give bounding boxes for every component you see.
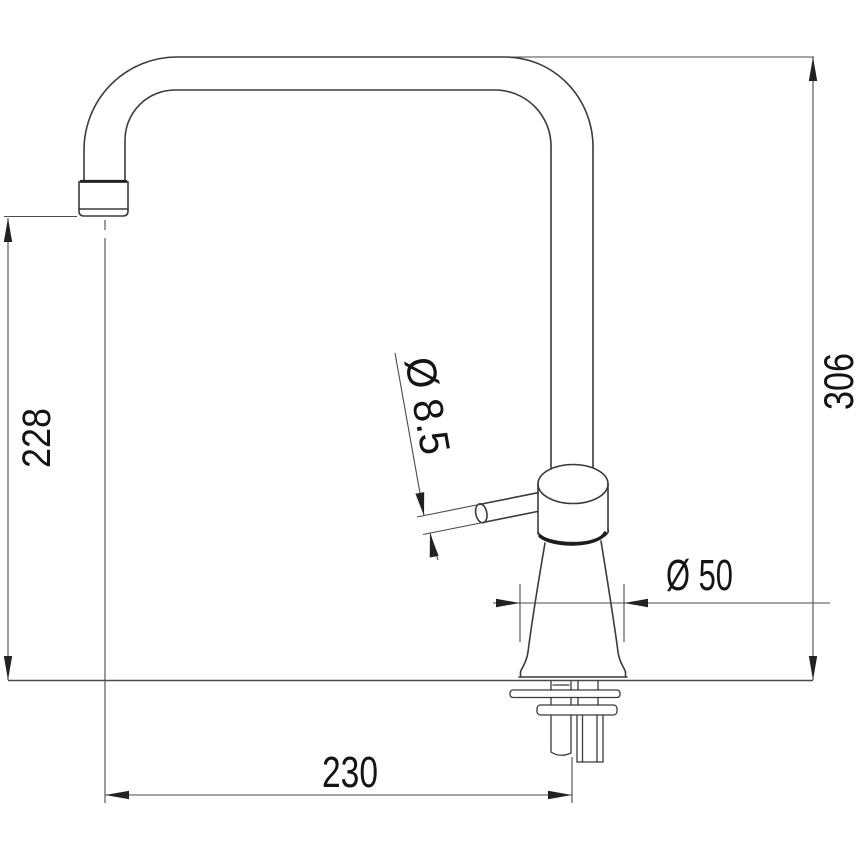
mounting-nut-plate [537, 705, 617, 715]
lever-bottom-edge [483, 511, 538, 522]
body-left-edge [521, 543, 546, 677]
dimension-body-diameter: Ø 50 [493, 551, 830, 642]
dia50-arrow-right [624, 599, 648, 607]
dia85-arrow-upper [415, 492, 424, 515]
lever-top-edge [479, 493, 538, 505]
dia85-extension-lower [423, 523, 483, 535]
dia50-label: Ø 50 [666, 551, 733, 600]
aerator-outline [79, 182, 128, 216]
dim306-label: 306 [815, 353, 860, 410]
mounting-hardware [510, 681, 620, 762]
dia85-arrow-lower [430, 533, 439, 557]
dim306-arrow-down [809, 656, 817, 680]
dimension-spout-height: 228 [4, 217, 77, 681]
dim228-arrow-down [4, 656, 12, 680]
dim230-label: 230 [322, 748, 378, 797]
dim230-arrow-left [105, 791, 129, 799]
drawing-canvas: 228 306 230 Ø 50 Ø 8.5 [0, 0, 860, 860]
body-right-edge [601, 541, 626, 677]
cap-top-ellipse [538, 465, 608, 504]
threaded-stud [577, 715, 603, 762]
dim228-label: 228 [15, 408, 59, 468]
lever-handle [474, 493, 538, 524]
faucet-technical-drawing: 228 306 230 Ø 50 Ø 8.5 [0, 0, 860, 860]
spout-inner-edge [125, 90, 551, 469]
faucet-body [519, 541, 627, 677]
dimension-spout-reach: 230 [105, 220, 572, 803]
cap-seam-arc [540, 533, 605, 544]
dimension-lever-diameter: Ø 8.5 [395, 353, 483, 560]
lever-cap [538, 465, 608, 545]
spout-outer-edge [84, 57, 593, 468]
lever-end-cap [474, 503, 489, 524]
dim306-arrow-up [809, 57, 817, 81]
spout-tube [84, 57, 593, 469]
aerator [79, 181, 128, 216]
dia85-label: Ø 8.5 [396, 353, 459, 458]
supply-shank [551, 715, 571, 755]
washer-plate [510, 690, 620, 698]
dia85-extension-upper [417, 505, 479, 518]
dia50-arrow-left [496, 599, 520, 607]
dim228-arrow-up [4, 218, 12, 242]
dim230-arrow-right [548, 791, 572, 799]
